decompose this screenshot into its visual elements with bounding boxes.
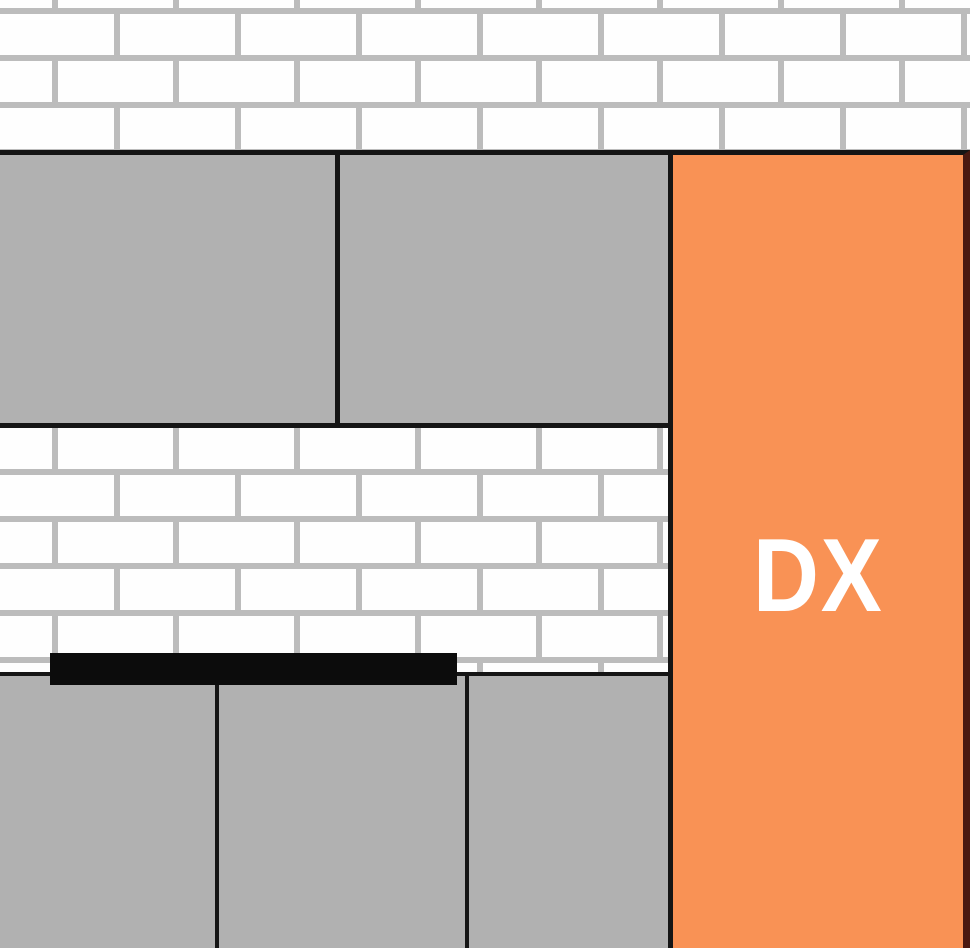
lintel-bar — [50, 653, 457, 685]
lower-panel-right — [465, 676, 668, 948]
brick-wall-middle — [0, 428, 668, 672]
brick-wall-upper — [0, 0, 970, 152]
upper-panel-right — [335, 155, 668, 423]
upper-panel-left — [0, 155, 335, 423]
dx-panel: DX — [668, 150, 970, 948]
brick-wall-upper-fill — [0, 0, 970, 152]
dx-label: DX — [753, 524, 884, 628]
lower-panel-left — [0, 676, 215, 948]
lower-panel-row — [0, 672, 668, 948]
brick-wall-middle-fill — [0, 428, 668, 672]
upper-panel-row — [0, 150, 668, 428]
lower-panel-center — [215, 676, 465, 948]
masonry-wall-diagram: DX — [0, 0, 970, 948]
